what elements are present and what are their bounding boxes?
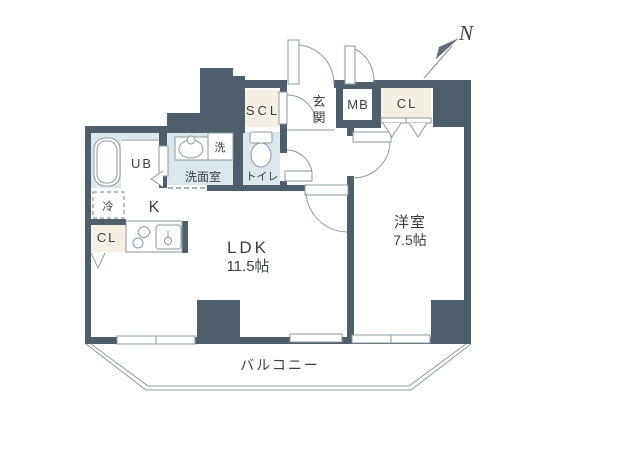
wall-washroom-toilet [233, 127, 243, 191]
entrance-door-leaf [288, 40, 299, 84]
wall-top-c [373, 80, 433, 88]
toilet-bowl [251, 143, 271, 167]
north-label: N [458, 21, 474, 45]
entrance-label-char1: 玄 [312, 94, 325, 109]
washer-label: 洗 [215, 141, 226, 154]
wall-ldk-western [347, 185, 354, 338]
kitchen-closet-folding-mark [91, 253, 105, 268]
wall-top-right-block [433, 80, 471, 127]
toilet-tank [250, 132, 272, 143]
ldk-label: LDK [227, 238, 269, 257]
ldk-door-arc [306, 193, 347, 232]
toilet-door-leaf [285, 171, 312, 181]
ldk-door-leaf [305, 185, 348, 195]
wall-hall-south [207, 185, 305, 191]
meter-box-door-leaf [345, 46, 355, 84]
shoe-closet-door-leaf [279, 92, 287, 124]
meter-box-label: MB [347, 97, 369, 112]
wall-top-a [238, 80, 287, 88]
wall-top-left-block [167, 68, 245, 133]
ldk-size-label: 11.5帖 [226, 258, 269, 275]
pillar-ldk [197, 300, 240, 343]
wall-left [85, 126, 91, 343]
vanity-faucet [187, 136, 195, 144]
toilet-label: トイレ [246, 171, 279, 183]
fridge-label: 冷 [103, 200, 114, 213]
shoe-closet-label: SCL [246, 103, 280, 118]
western-room-size-label: 7.5帖 [393, 232, 426, 248]
bath-door-leaf [159, 146, 168, 176]
toilet-door-arc [287, 150, 312, 172]
kitchen-closet-label: CL [97, 230, 118, 245]
bedroom-closet-label: CL [397, 96, 418, 111]
western-room-label: 洋室 [394, 214, 426, 231]
compass: N [424, 21, 474, 78]
stove-burner-1 [139, 227, 150, 238]
kitchen-label: K [149, 199, 160, 216]
closet-folding-mark-2 [409, 123, 427, 137]
wall-counter-end [182, 221, 188, 253]
meter-box-door-arc [355, 49, 374, 83]
pillar-western [431, 300, 471, 341]
western-room-door-leaf [353, 132, 391, 142]
unit-bath-label: UB [131, 156, 153, 171]
window-western-small [290, 334, 342, 342]
entrance-label-char2: 関 [312, 110, 325, 125]
north-arrow-head [436, 38, 459, 59]
floor-plan: N SCL 玄 関 MB CL UB 洗 洗面室 トイレ 冷 K CL LDK … [0, 0, 640, 452]
north-arrow-line [424, 46, 452, 78]
wall-kitchen-closet-top [88, 219, 126, 225]
entrance-door-arc [299, 45, 334, 84]
floor-plan-drawing: N SCL 玄 関 MB CL UB 洗 洗面室 トイレ 冷 K CL LDK … [0, 0, 640, 452]
stove-burner-2 [133, 238, 143, 248]
wall-bath-top [85, 126, 167, 133]
washroom-label: 洗面室 [185, 169, 221, 184]
western-room-door-arc [353, 142, 390, 178]
kitchen-faucet [165, 238, 172, 245]
balcony-label: バルコニー [240, 357, 320, 373]
